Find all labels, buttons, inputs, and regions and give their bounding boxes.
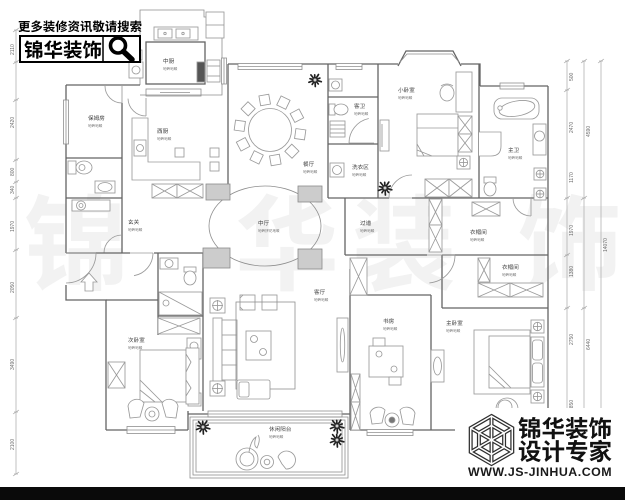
svg-text:1380: 1380	[569, 266, 575, 277]
svg-text:4590: 4590	[586, 126, 592, 137]
svg-text:1170: 1170	[569, 172, 575, 183]
svg-text:800: 800	[10, 167, 16, 176]
svg-text:340: 340	[10, 185, 16, 194]
svg-text:2100: 2100	[10, 439, 16, 450]
svg-text:1970: 1970	[569, 225, 575, 236]
svg-text:2750: 2750	[569, 334, 575, 345]
svg-text:2110: 2110	[10, 44, 16, 55]
svg-text:500: 500	[569, 72, 575, 81]
svg-text:WWW.JS-JINHUA.COM: WWW.JS-JINHUA.COM	[468, 465, 612, 479]
svg-text:2420: 2420	[10, 117, 16, 128]
svg-text:1970: 1970	[10, 221, 16, 232]
svg-text:3490: 3490	[10, 359, 16, 370]
svg-text:2470: 2470	[569, 122, 575, 133]
svg-text:2050: 2050	[10, 282, 16, 293]
svg-text:14070: 14070	[603, 238, 609, 252]
svg-text:6440: 6440	[586, 339, 592, 350]
